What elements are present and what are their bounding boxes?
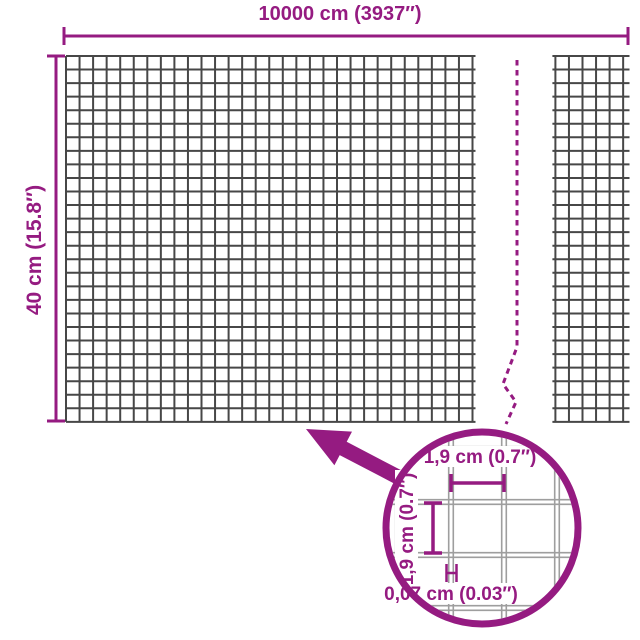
height-dimension-line xyxy=(47,56,65,421)
dimension-diagram: 1,9 cm (0.7″) 1,9 cm (0.7″) 0,07 cm (0.0… xyxy=(0,0,640,640)
magnifier-lens: 1,9 cm (0.7″) 1,9 cm (0.7″) 0,07 cm (0.0… xyxy=(384,430,612,626)
mesh-panel-right xyxy=(552,56,629,422)
mesh-diagram-svg: 1,9 cm (0.7″) 1,9 cm (0.7″) 0,07 cm (0.0… xyxy=(0,0,640,640)
break-line xyxy=(503,60,517,424)
mesh-panel-left xyxy=(66,56,476,422)
total-width-label: 10000 cm (3937″) xyxy=(258,3,421,25)
zoom-arrow-icon xyxy=(306,429,402,484)
mesh-opening-width-label: 1,9 cm (0.7″) xyxy=(424,447,537,468)
mesh-opening-height-label: 1,9 cm (0.7″) xyxy=(397,473,418,586)
width-dimension-line xyxy=(64,27,628,45)
total-height-label: 40 cm (15.8″) xyxy=(23,185,46,315)
